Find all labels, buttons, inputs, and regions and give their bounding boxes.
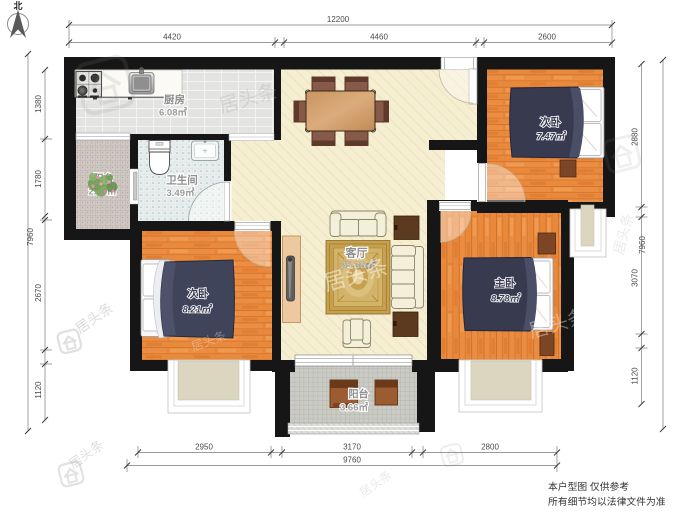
svg-text:3070: 3070 xyxy=(631,269,640,287)
svg-text:北: 北 xyxy=(13,0,22,11)
svg-text:2670: 2670 xyxy=(34,284,43,302)
svg-text:7.47㎡: 7.47㎡ xyxy=(537,131,567,143)
svg-text:1120: 1120 xyxy=(34,381,43,399)
svg-text:7960: 7960 xyxy=(638,236,647,254)
svg-text:1780: 1780 xyxy=(34,170,43,188)
svg-text:2950: 2950 xyxy=(195,443,213,452)
svg-text:阳台: 阳台 xyxy=(349,388,369,401)
svg-text:次卧: 次卧 xyxy=(188,287,209,300)
svg-text:2880: 2880 xyxy=(631,128,640,146)
svg-text:卫生间: 卫生间 xyxy=(166,174,198,187)
svg-text:9760: 9760 xyxy=(343,456,361,465)
svg-text:4460: 4460 xyxy=(370,33,388,42)
svg-text:2600: 2600 xyxy=(538,33,556,42)
svg-text:1120: 1120 xyxy=(631,367,640,385)
svg-text:客厅: 客厅 xyxy=(345,246,368,260)
svg-text:所有细节均以法律文件为准: 所有细节均以法律文件为准 xyxy=(548,495,666,508)
svg-text:3170: 3170 xyxy=(343,443,361,452)
svg-text:7960: 7960 xyxy=(26,228,35,246)
svg-text:3.66㎡: 3.66㎡ xyxy=(340,402,368,414)
svg-text:12200: 12200 xyxy=(327,15,350,24)
svg-text:8.78㎡: 8.78㎡ xyxy=(491,293,521,305)
svg-text:主卧: 主卧 xyxy=(495,277,516,290)
svg-text:6.08㎡: 6.08㎡ xyxy=(159,107,187,119)
svg-text:3.49㎡: 3.49㎡ xyxy=(167,187,195,199)
svg-text:厨房: 厨房 xyxy=(164,93,185,106)
svg-text:2800: 2800 xyxy=(481,443,499,452)
svg-text:1380: 1380 xyxy=(34,95,43,113)
svg-text:次卧: 次卧 xyxy=(540,116,561,129)
svg-text:本户型图 仅供参考: 本户型图 仅供参考 xyxy=(548,480,629,493)
svg-text:4420: 4420 xyxy=(163,33,181,42)
svg-text:8.21㎡: 8.21㎡ xyxy=(183,304,213,316)
